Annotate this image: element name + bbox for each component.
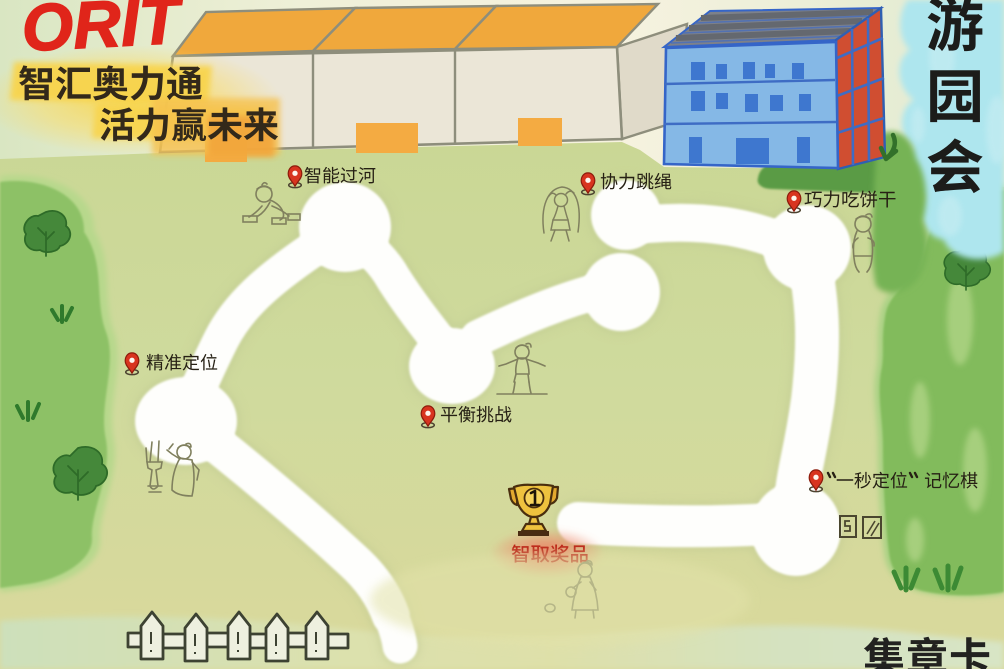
svg-text:ORIT: ORIT [20,0,186,65]
